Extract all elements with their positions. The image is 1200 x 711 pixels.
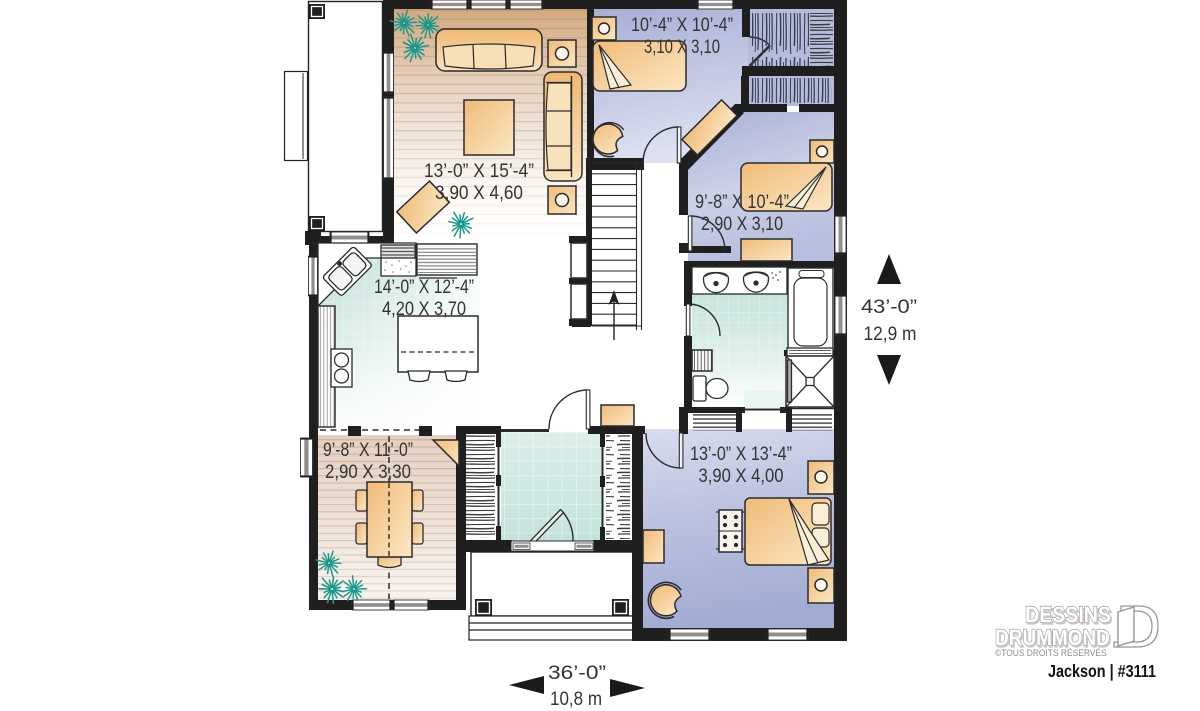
svg-text:2,90 X 3,10: 2,90 X 3,10 xyxy=(701,214,783,235)
svg-text:13’-0” X 13’-4”: 13’-0” X 13’-4” xyxy=(690,444,792,465)
svg-text:10’-4” X 10’-4”: 10’-4” X 10’-4” xyxy=(631,15,733,36)
svg-text:2,90 X 3,30: 2,90 X 3,30 xyxy=(325,462,411,483)
svg-text:13’-0” X 15’-4”: 13’-0” X 15’-4” xyxy=(424,161,534,182)
svg-text:12,9 m: 12,9 m xyxy=(864,324,917,345)
svg-text:9’-8” X 10’-4”: 9’-8” X 10’-4” xyxy=(695,192,789,213)
svg-text:3,90 X 4,00: 3,90 X 4,00 xyxy=(699,466,784,487)
svg-text:43’-0”: 43’-0” xyxy=(861,297,917,318)
svg-text:10,8 m: 10,8 m xyxy=(550,689,602,710)
svg-text:14’-0” X 12’-4”: 14’-0” X 12’-4” xyxy=(374,277,474,298)
svg-text:DESSINS: DESSINS xyxy=(1025,603,1111,628)
svg-text:3,10 X 3,10: 3,10 X 3,10 xyxy=(644,37,720,58)
svg-text:Jackson | #3111: Jackson | #3111 xyxy=(1048,661,1156,681)
svg-text:4,20 X 3,70: 4,20 X 3,70 xyxy=(382,299,466,320)
svg-text:9’-8” X 11’-0”: 9’-8” X 11’-0” xyxy=(323,440,413,461)
svg-text:36’-0”: 36’-0” xyxy=(548,663,606,684)
svg-text:©TOUS DROITS RÉSERVÉS: ©TOUS DROITS RÉSERVÉS xyxy=(995,648,1107,659)
svg-text:3,90 X 4,60: 3,90 X 4,60 xyxy=(435,183,523,204)
